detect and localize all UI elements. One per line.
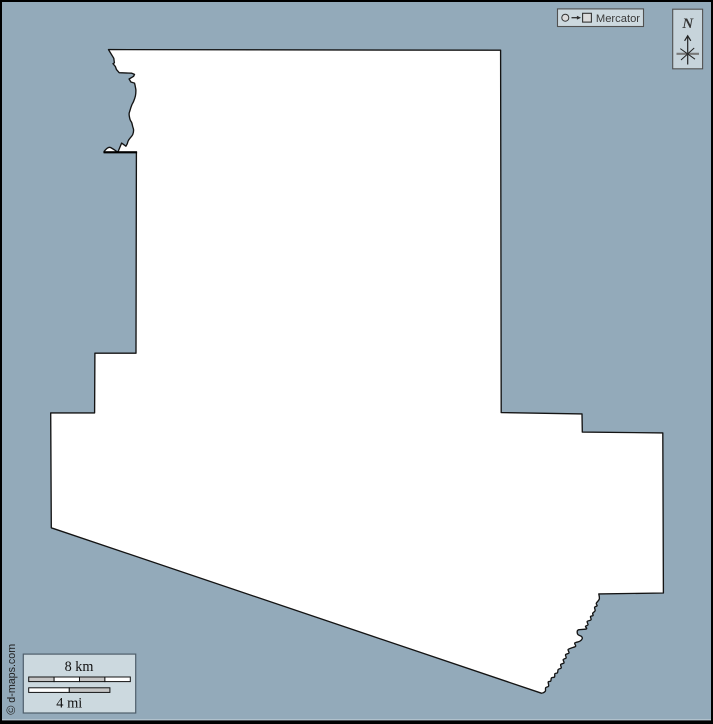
svg-text:© d-maps.com: © d-maps.com	[4, 644, 18, 715]
svg-text:N: N	[681, 16, 694, 32]
svg-text:8 km: 8 km	[65, 659, 94, 675]
svg-text:Mercator: Mercator	[596, 13, 640, 25]
svg-text:4 mi: 4 mi	[56, 695, 82, 711]
